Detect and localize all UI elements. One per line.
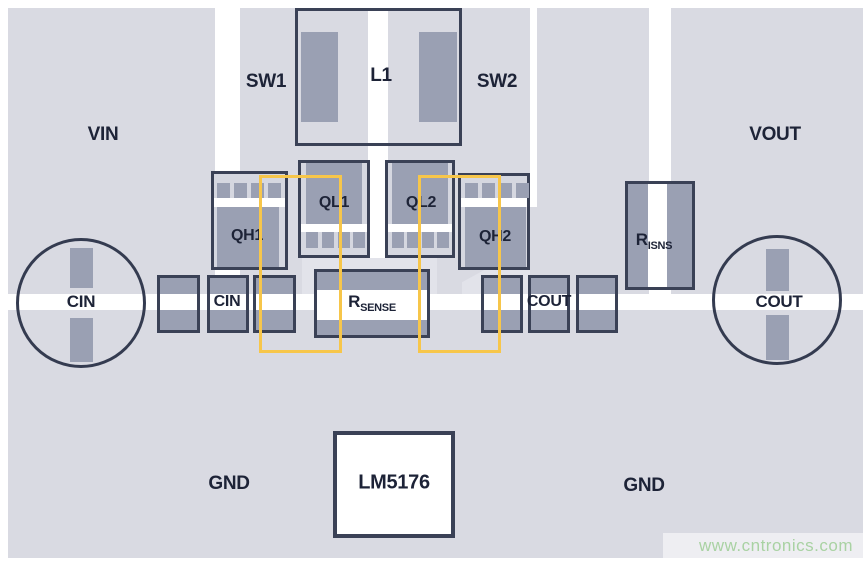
cap-body xyxy=(579,294,615,310)
risns-label-sub: ISNS xyxy=(648,240,672,252)
cout-cap-label: COUT xyxy=(527,293,571,311)
cap-pad-top xyxy=(579,278,615,294)
current-loop-left xyxy=(259,175,342,353)
sw2-right-channel xyxy=(530,8,537,207)
l1-pad-left xyxy=(301,32,338,122)
qh1-pin-pad xyxy=(217,183,230,198)
rsense-label: RSENSE xyxy=(348,292,396,314)
rsense-label-main: R xyxy=(348,292,360,311)
l1-pad-right xyxy=(419,32,457,122)
ql1-pin-pad xyxy=(353,232,365,248)
cin-cap-label: CIN xyxy=(214,293,241,311)
ql2-pin-pad xyxy=(392,232,404,248)
risns-label: RISNS xyxy=(636,230,672,252)
cout-bulk-pad-top xyxy=(766,249,789,291)
cap-pad-bottom xyxy=(579,310,615,330)
l1-label: L1 xyxy=(370,65,392,87)
vin-label: VIN xyxy=(88,124,119,146)
cap-body xyxy=(160,294,197,310)
qh2-pin-pad xyxy=(516,183,529,198)
cap-pad-bottom xyxy=(531,310,567,330)
rsense-label-sub: SENSE xyxy=(360,302,396,314)
sw2-label: SW2 xyxy=(477,71,517,93)
vout-label: VOUT xyxy=(749,124,801,146)
cap-pad-top xyxy=(210,278,246,294)
cin-bulk-label: CIN xyxy=(67,292,95,312)
current-loop-right xyxy=(418,175,501,353)
qh1-pin-pad xyxy=(234,183,247,198)
cin-bulk-pad-top xyxy=(70,248,93,288)
cin-ceramic-cap xyxy=(157,275,200,333)
cout-ceramic-cap xyxy=(576,275,618,333)
ic-lm5176-label: LM5176 xyxy=(358,472,430,495)
sw1-label: SW1 xyxy=(246,71,286,93)
cap-pad-top xyxy=(160,278,197,294)
cin-bulk-pad-bottom xyxy=(70,318,93,362)
watermark-text: www.cntronics.com xyxy=(699,536,853,556)
watermark: www.cntronics.com xyxy=(663,533,863,558)
cap-pad-bottom xyxy=(160,310,197,330)
risns-label-main: R xyxy=(636,230,648,249)
gnd-right-label: GND xyxy=(623,475,664,497)
gnd-left-label: GND xyxy=(208,473,249,495)
cout-bulk-pad-bottom xyxy=(766,315,789,360)
cout-bulk-label: COUT xyxy=(756,292,803,312)
cap-pad-top xyxy=(531,278,567,294)
pcb-layout-diagram: QH1 QL1 QL2 QH2 RSENSE xyxy=(0,0,863,564)
cap-pad-bottom xyxy=(210,310,246,330)
